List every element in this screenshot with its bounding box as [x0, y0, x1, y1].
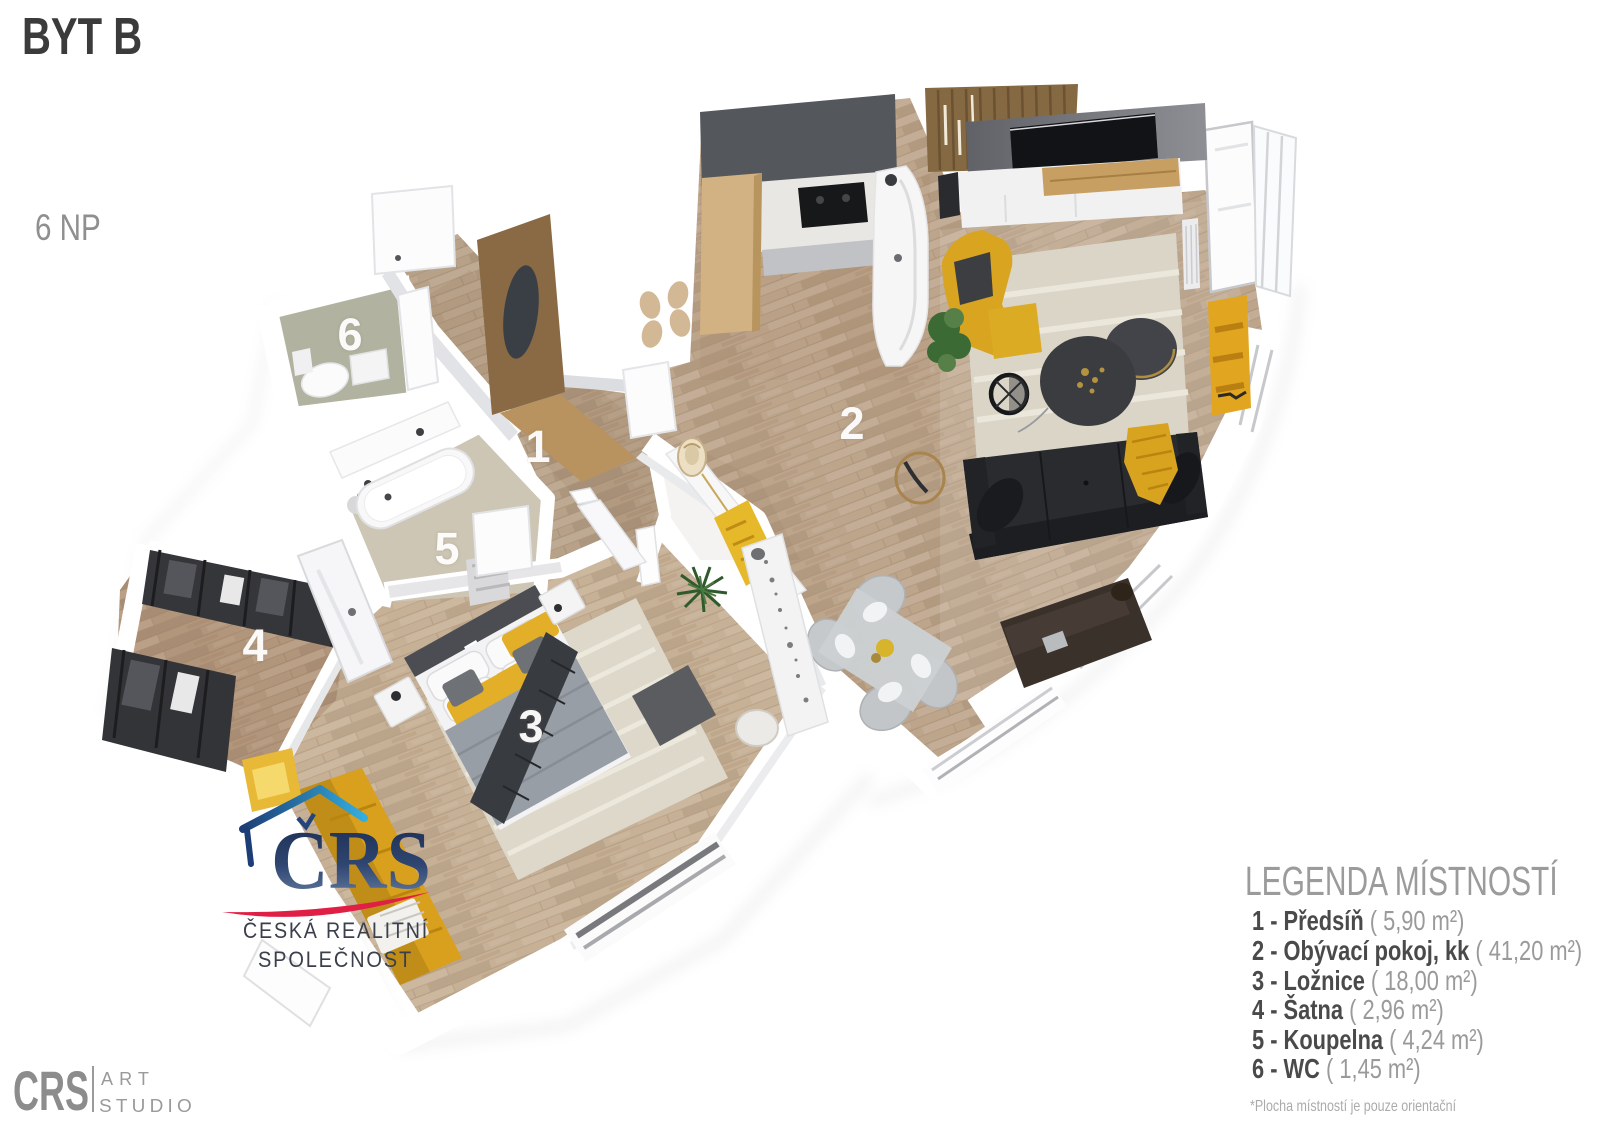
svg-text:ART: ART	[101, 1069, 155, 1089]
svg-text:CRS: CRS	[13, 1059, 89, 1122]
svg-text:CRS: CRS	[271, 814, 431, 907]
svg-text:ČESKÁ REALITNÍ: ČESKÁ REALITNÍ	[243, 918, 429, 943]
svg-text:STUDIO: STUDIO	[99, 1096, 196, 1116]
svg-text:SPOLEČNOST: SPOLEČNOST	[258, 947, 413, 972]
